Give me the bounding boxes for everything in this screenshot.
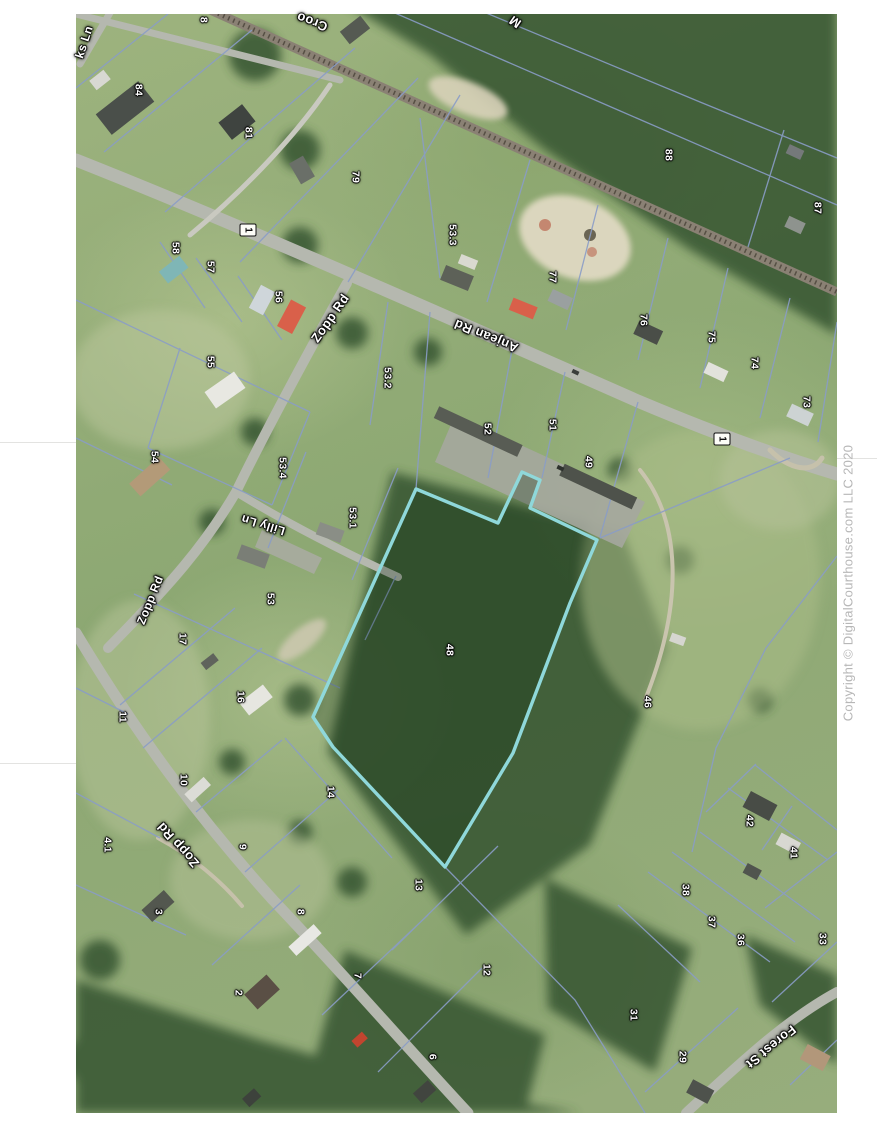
map-graphics: [76, 14, 837, 1113]
fold-mark: [0, 442, 76, 443]
fold-mark: [0, 763, 76, 764]
aerial-photo: [76, 14, 837, 1113]
copyright-watermark: Copyright © DigitalCourthouse.com LLC 20…: [841, 445, 856, 722]
scanned-parcel-map-page: 8848179888753.377585756557675747353.2525…: [0, 0, 877, 1135]
